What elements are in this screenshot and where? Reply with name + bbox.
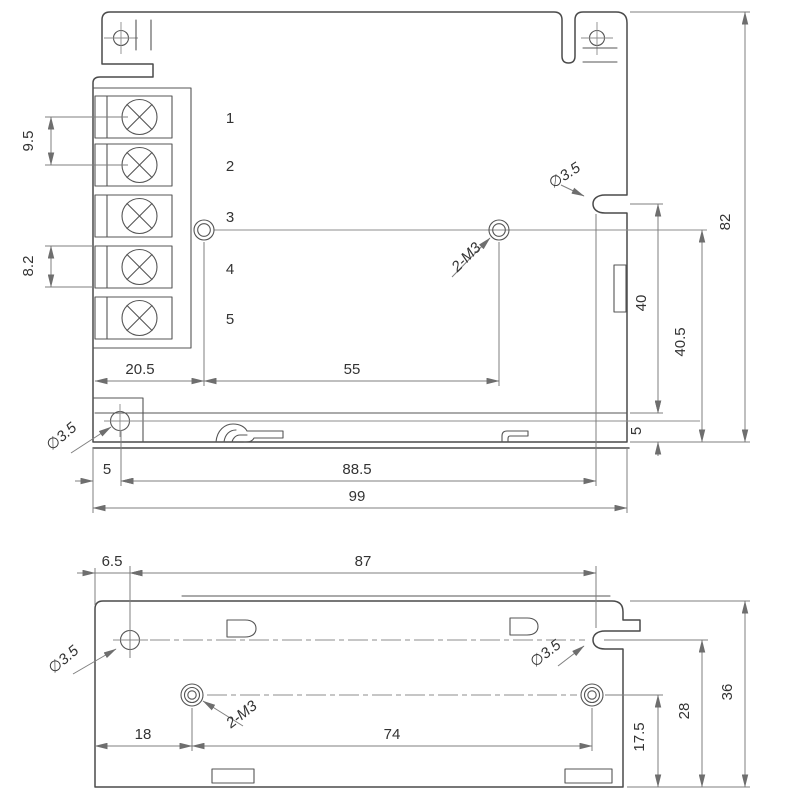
vent-slot-right — [565, 769, 612, 783]
terminal-5 — [95, 297, 172, 339]
terminal-label-4: 4 — [226, 261, 234, 278]
dim-text: 18 — [135, 726, 152, 743]
dim-overall-depth: 82 — [630, 12, 750, 442]
dim-text: 9.5 — [20, 131, 37, 152]
dim-hole-spacing: 55 — [204, 361, 499, 381]
dim-text: 88.5 — [342, 461, 371, 478]
terminal-numbers: 1 2 3 4 5 — [226, 110, 234, 328]
dim-text: 28 — [676, 703, 693, 720]
dim-text: 40.5 — [672, 327, 689, 356]
dim-text: 5 — [628, 427, 645, 435]
dim-hole-to-notch: 87 — [130, 553, 596, 628]
dim-pin-pitch-upper: 9.5 — [20, 117, 128, 165]
dim-text: 6.5 — [102, 553, 123, 570]
mounting-tab-left — [104, 20, 151, 54]
terminal-3 — [95, 195, 172, 237]
dim-edge-to-stud: 18 — [95, 708, 192, 751]
dim-base-lip: 5 — [628, 399, 658, 456]
dim-text: 36 — [719, 684, 736, 701]
dim-pin-pitch-lower: 8.2 — [20, 246, 93, 287]
dim-text: 82 — [717, 214, 734, 231]
label-notch-dia: ∅3.5 — [546, 159, 584, 196]
label-notch-dia-bottom-view: ∅3.5 — [527, 636, 584, 671]
strain-relief-bushing — [216, 424, 283, 442]
side-slot — [614, 265, 626, 312]
leader-text: 2-M3 — [222, 697, 261, 732]
terminal-label-1: 1 — [226, 110, 234, 127]
drawing-canvas: 1 2 3 4 5 — [0, 0, 800, 800]
dim-text: 40 — [633, 295, 650, 312]
dim-overall-height: 36 — [630, 601, 750, 787]
flange-hole — [104, 404, 700, 437]
dim-notch-to-base: 40 — [630, 204, 663, 413]
corner-hole — [113, 566, 585, 658]
m3-holes-top-view — [194, 220, 707, 240]
mounting-tab-right — [581, 22, 617, 62]
terminal-4 — [95, 246, 172, 288]
dim-block-to-hole: 20.5 — [95, 242, 499, 386]
terminal-label-3: 3 — [226, 209, 234, 226]
d-slot-left — [227, 620, 256, 637]
dim-text: 99 — [349, 488, 366, 505]
dim-text: 87 — [355, 553, 372, 570]
label-hole-dia-bottom-view: ∅3.5 — [45, 642, 116, 677]
leader-text: ∅3.5 — [43, 419, 80, 454]
label-thread-top-view: 2-M3 — [448, 238, 490, 277]
psu-mechanical-drawing: 1 2 3 4 5 — [0, 0, 800, 800]
dim-notch-to-edge: 28 — [604, 640, 708, 787]
dim-hole-to-base: 40.5 — [630, 230, 750, 442]
top-view: 1 2 3 4 5 — [20, 12, 750, 513]
dim-text: 5 — [103, 461, 111, 478]
m3-hole-left — [194, 220, 214, 240]
dim-text: 8.2 — [20, 256, 37, 277]
terminal-block — [93, 88, 191, 348]
dim-text: 20.5 — [125, 361, 154, 378]
bottom-view-outline — [95, 596, 640, 787]
label-thread-bottom-view: 2-M3 — [203, 697, 261, 732]
dim-text: 17.5 — [631, 722, 648, 751]
vent-slot-left — [212, 769, 254, 783]
dim-text: 74 — [384, 726, 401, 743]
terminal-label-5: 5 — [226, 311, 234, 328]
terminal-label-2: 2 — [226, 158, 234, 175]
d-slot-right — [510, 618, 538, 635]
leader-text: 2-M3 — [448, 239, 485, 276]
bottom-view: 6.5 87 18 74 17.5 28 — [45, 553, 750, 787]
dim-text: 55 — [344, 361, 361, 378]
base-hook — [502, 431, 528, 442]
dim-edge-to-hole: 6.5 — [77, 553, 148, 605]
dim-flange-hole-to-notch: 88.5 — [121, 214, 596, 486]
